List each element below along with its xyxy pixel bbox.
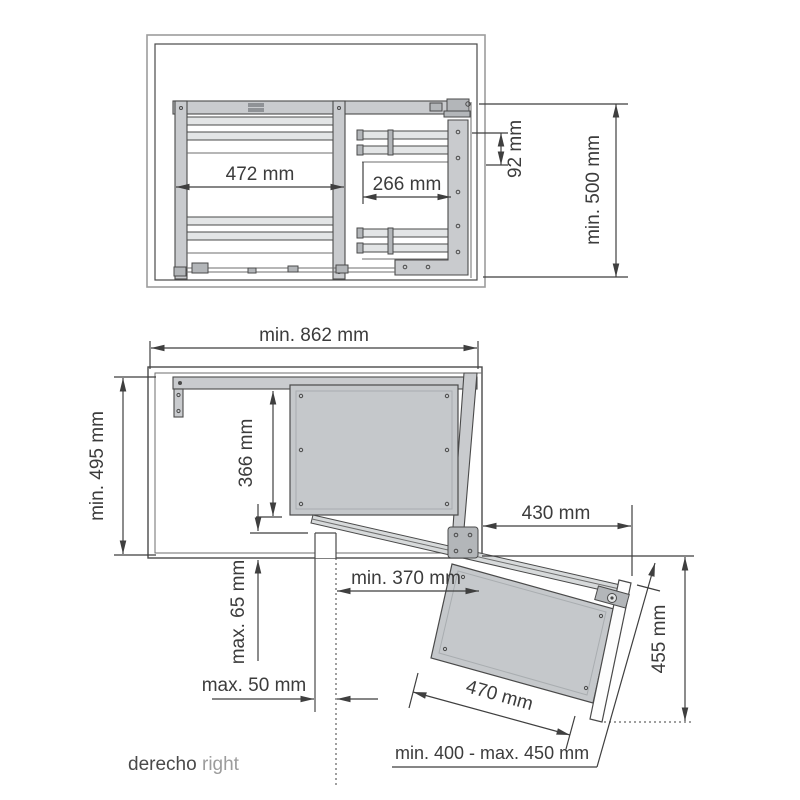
caption: derecho right <box>128 754 240 775</box>
caption-right: right <box>202 754 240 775</box>
dim-rail-spacing: 92 mm <box>472 120 526 178</box>
dim-label-472mm: 472 mm <box>226 164 295 185</box>
front-view-wall-stub <box>315 533 336 788</box>
dim-label-92mm: 92 mm <box>505 120 526 178</box>
dim-label-min-862mm: min. 862 mm <box>259 325 369 346</box>
dim-label-max-65mm: max. 65 mm <box>228 560 249 665</box>
dim-cabinet-width: min. 862 mm <box>150 325 478 369</box>
dim-left-basket-width: 472 mm <box>176 164 344 187</box>
front-view: min. 862 mm min. 495 mm 366 mm max. 65 m… <box>87 325 694 788</box>
dim-cabinet-depth: min. 500 mm <box>479 104 628 277</box>
top-view: 472 mm 266 mm 92 mm min. 500 mm <box>147 35 628 287</box>
drawing-canvas: 472 mm 266 mm 92 mm min. 500 mm <box>0 0 800 800</box>
front-view-pivot-block <box>448 527 478 558</box>
top-view-left-wire-baskets <box>187 117 333 253</box>
technical-drawing-page: 472 mm 266 mm 92 mm min. 500 mm <box>0 0 800 800</box>
dim-label-266mm: 266 mm <box>373 174 442 195</box>
dim-side-gap: max. 50 mm <box>202 675 378 699</box>
dim-door-basket-width: 266 mm <box>363 162 451 204</box>
top-view-front-rail <box>173 99 470 117</box>
caption-derecho: derecho <box>128 754 197 775</box>
dim-label-min-495mm: min. 495 mm <box>87 411 108 521</box>
top-view-bottom-slide-rail <box>174 263 395 276</box>
front-view-back-panel <box>290 385 458 515</box>
dim-label-366mm: 366 mm <box>236 419 257 488</box>
dim-label-min-370mm: min. 370 mm <box>351 568 461 589</box>
dim-bottom-gap: max. 65 mm <box>228 504 308 664</box>
dim-label-min400-max450: min. 400 - max. 450 mm <box>395 743 589 763</box>
dim-label-min-500mm: min. 500 mm <box>583 135 604 245</box>
top-view-pullout-frame <box>175 101 345 279</box>
dim-label-430mm: 430 mm <box>522 503 591 524</box>
dim-opening-clearance: min. 370 mm <box>337 568 479 591</box>
dim-cabinet-height: min. 495 mm <box>87 377 156 555</box>
dim-label-455mm: 455 mm <box>649 605 670 674</box>
dim-label-max-50mm: max. 50 mm <box>202 675 307 696</box>
dim-panel-height: 366 mm <box>236 391 282 517</box>
